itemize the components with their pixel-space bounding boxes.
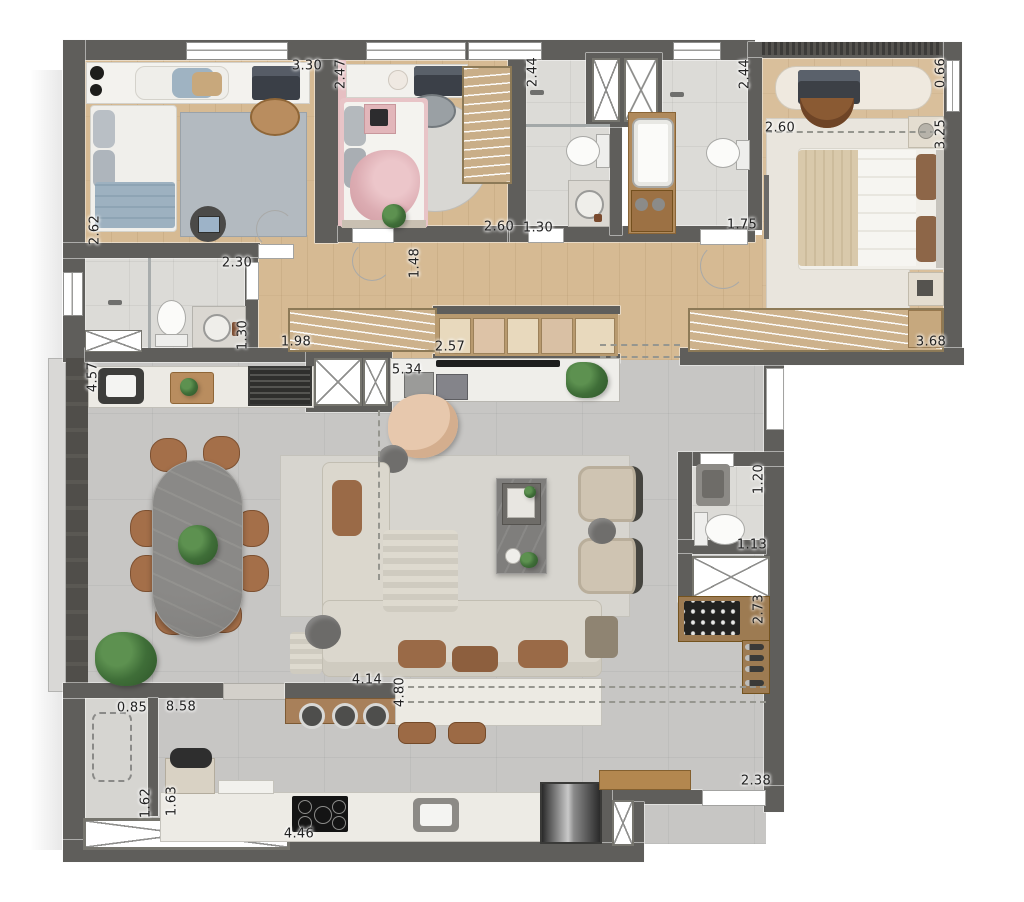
window <box>673 42 721 60</box>
floor-plan: 3.302.472.442.440.662.603.252.622.601.30… <box>0 0 1024 902</box>
shaft <box>314 358 362 406</box>
burner <box>332 703 358 729</box>
sofa-pillow <box>332 480 362 536</box>
pillow <box>192 72 222 96</box>
shower-head-icon <box>530 90 544 95</box>
closet-drawer-unit <box>473 318 505 354</box>
window <box>186 42 288 60</box>
laptop <box>252 66 300 100</box>
entry-door-opening <box>702 790 766 806</box>
door-opening <box>528 228 564 243</box>
door-swing <box>352 241 392 281</box>
sink-round <box>203 314 231 342</box>
toiletry-items <box>232 322 239 336</box>
closet-rail <box>288 308 437 352</box>
sink-round <box>635 198 648 211</box>
floor-plant <box>95 632 157 686</box>
burner-ring <box>332 816 346 830</box>
bar-stool <box>448 722 486 744</box>
side-table-round <box>305 615 341 649</box>
wall <box>63 683 85 862</box>
armchair <box>578 466 643 522</box>
burner-ring <box>298 816 312 830</box>
wall <box>148 698 158 816</box>
projection-line <box>600 344 680 346</box>
dish <box>505 548 521 564</box>
fridge <box>540 782 602 844</box>
wall <box>63 243 260 258</box>
shower-head-icon <box>108 300 122 305</box>
wall <box>748 58 762 230</box>
wall <box>315 60 338 243</box>
future-equipment-outline <box>92 712 132 782</box>
wall <box>764 786 784 812</box>
balcony-railing <box>48 358 66 692</box>
bedroom2-wardrobe <box>462 66 512 184</box>
sofa-pillow <box>518 640 568 668</box>
table-plant <box>178 525 218 565</box>
blanket-blue <box>95 182 175 228</box>
closet-drawer-unit <box>507 318 539 354</box>
shaft <box>592 58 620 122</box>
shaft <box>612 800 634 846</box>
sliding-door-track <box>764 175 769 239</box>
projection-line <box>600 356 680 358</box>
wall <box>610 120 622 235</box>
grill <box>248 366 312 406</box>
master-brise <box>762 42 942 55</box>
coffee-machine-panel <box>684 601 740 635</box>
window <box>468 42 542 60</box>
speaker-icon <box>90 66 104 80</box>
bath-vanity-wood <box>631 190 673 232</box>
toilet <box>157 300 186 336</box>
sofa-pillow <box>398 640 446 668</box>
small-plant <box>520 552 538 568</box>
burner-ring <box>314 806 332 824</box>
kitchen-half-wall-marble <box>223 683 287 700</box>
projection-line <box>398 686 766 688</box>
side-table-round <box>588 518 616 544</box>
wine-bottle <box>745 655 764 661</box>
wall <box>678 554 692 602</box>
wall <box>63 40 85 258</box>
sofa-pillow <box>452 646 498 672</box>
pillow <box>916 216 938 262</box>
bathtub <box>632 118 674 188</box>
shaft <box>363 358 388 406</box>
headboard <box>936 150 944 268</box>
pillow <box>916 154 938 200</box>
armchair <box>578 538 643 594</box>
pillow <box>344 106 366 146</box>
bar-sink-basin <box>106 375 136 397</box>
projection-line <box>378 410 380 580</box>
shower-head-icon <box>670 92 684 97</box>
desk-chair <box>250 98 300 136</box>
kitchen-counter <box>160 792 542 842</box>
projection-line <box>398 701 766 703</box>
projection-line <box>766 131 936 133</box>
sink-round <box>652 198 665 211</box>
sofa-throw <box>383 530 458 612</box>
wall <box>433 306 620 314</box>
closet-drawer-unit <box>575 318 615 354</box>
bar-stool <box>398 722 436 744</box>
door-swing <box>700 243 746 289</box>
decor-box <box>917 280 933 296</box>
toilet <box>706 138 740 168</box>
counter-slab <box>218 780 274 794</box>
wardrobe-cabinet <box>908 310 942 348</box>
tv <box>436 360 560 367</box>
tablet <box>370 109 388 126</box>
tray-plant <box>524 486 536 498</box>
plant <box>566 362 608 398</box>
door-swing <box>256 210 294 248</box>
toilet-tank <box>155 334 188 347</box>
wall <box>63 683 223 698</box>
duvet <box>858 150 916 266</box>
toilet <box>566 136 600 166</box>
burner <box>363 703 389 729</box>
balcony-planter <box>66 358 88 688</box>
window <box>366 42 466 60</box>
blanket-beige <box>798 150 860 266</box>
wall <box>285 683 395 698</box>
burner <box>299 703 325 729</box>
wine-bottle <box>745 666 764 672</box>
decor-frame <box>436 374 468 400</box>
toilet <box>705 514 745 545</box>
toiletry-items <box>594 214 602 222</box>
door-opening <box>246 262 259 300</box>
snack-drawer <box>599 770 691 790</box>
small-appliance <box>170 748 212 768</box>
side-table-square <box>585 616 618 658</box>
pillow <box>93 110 115 148</box>
shaft <box>692 556 770 598</box>
lav-sink-basin <box>702 470 724 498</box>
speaker-icon <box>90 84 102 96</box>
closet-drawer-unit <box>439 318 471 354</box>
kitchen-sink-basin <box>420 804 452 826</box>
burner-ring <box>298 800 312 814</box>
herbs <box>180 378 198 396</box>
wine-bottle <box>745 644 764 650</box>
shower-tray <box>85 330 142 352</box>
door-opening <box>766 368 784 430</box>
master-wardrobe <box>688 308 944 352</box>
closet-drawer-unit <box>541 318 573 354</box>
burner-ring <box>332 800 346 814</box>
window <box>63 272 83 316</box>
tv-tray <box>198 216 220 233</box>
laptop <box>414 66 464 96</box>
decor-dish <box>388 70 408 90</box>
shower-divider <box>148 258 151 348</box>
plant <box>382 204 406 228</box>
window <box>946 60 960 112</box>
shower-glass <box>526 124 610 127</box>
